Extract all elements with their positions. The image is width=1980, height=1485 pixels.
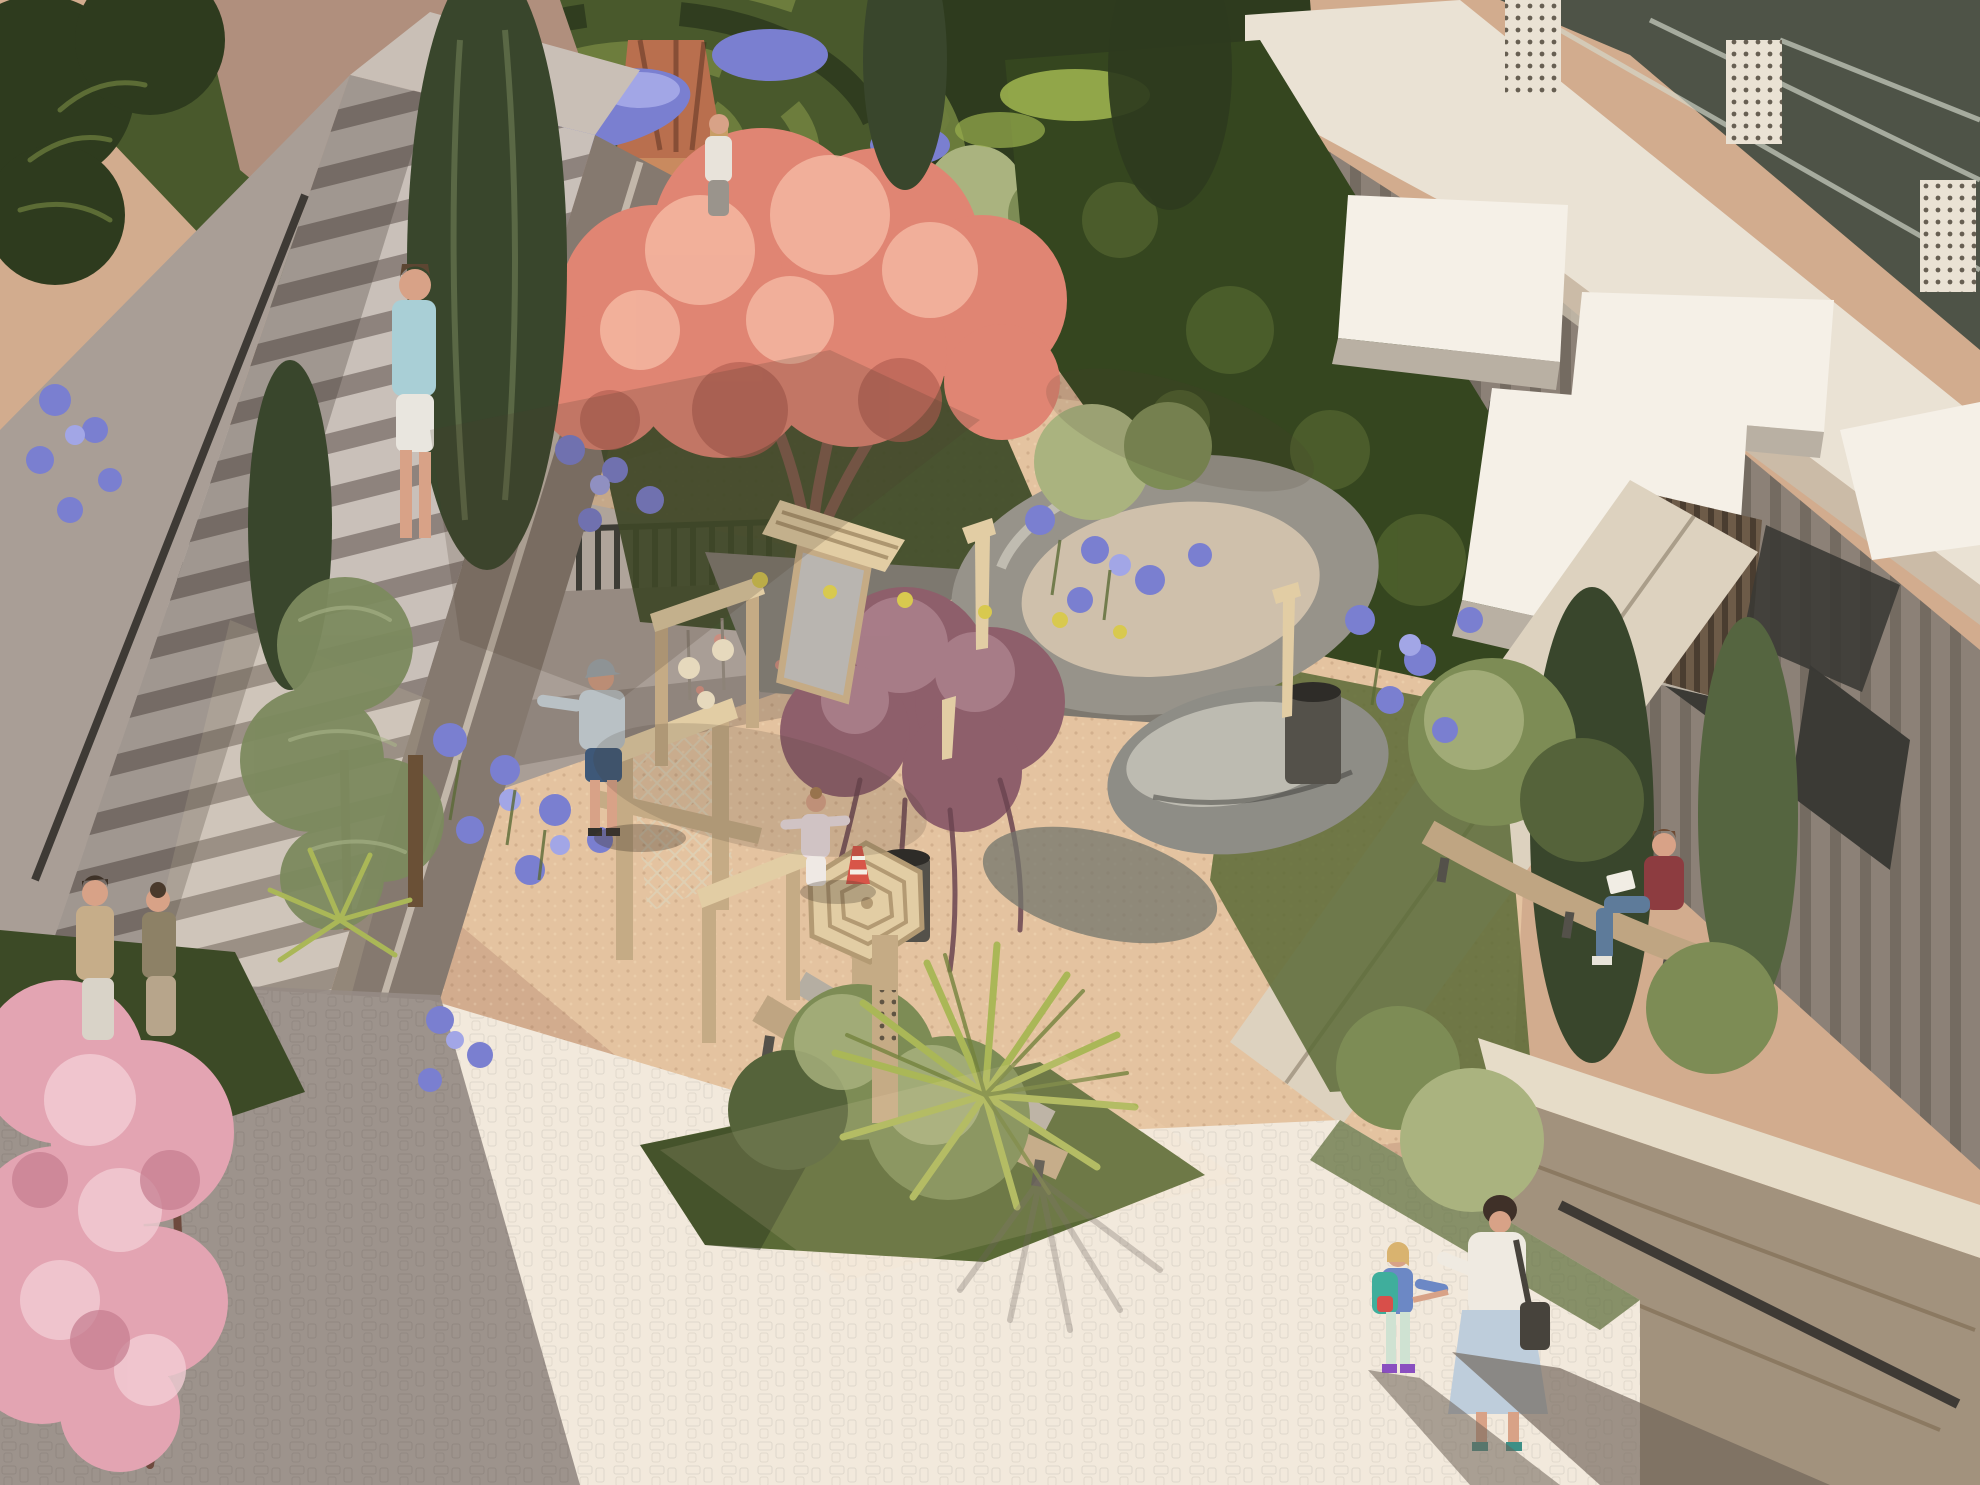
dark-post [408,755,423,907]
rendering-stage [0,0,1980,1485]
awning-1 [1338,195,1568,362]
litter-bin-1 [1285,682,1341,784]
courtyard-rendering [0,0,1980,1485]
